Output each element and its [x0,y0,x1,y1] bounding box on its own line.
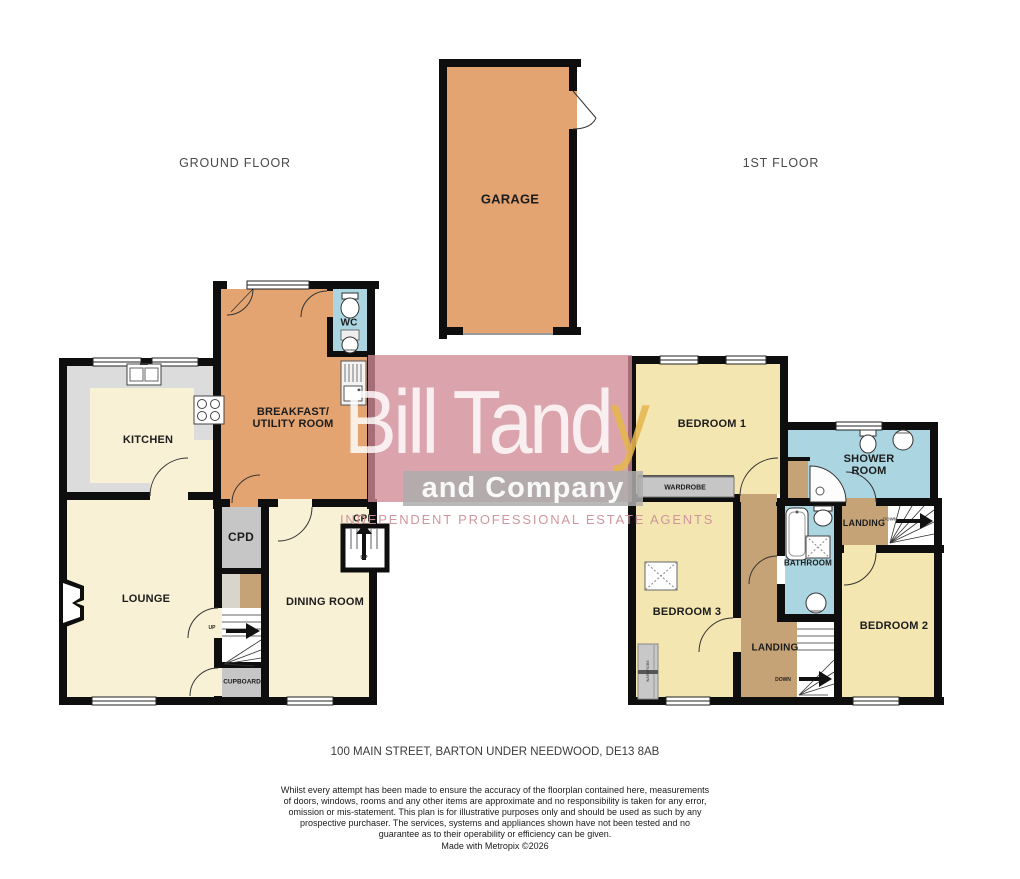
hall-area [222,574,240,608]
small-cpd-staircase-icon [343,524,387,570]
metropix-credit: Made with Metropix ©2026 [280,841,710,851]
shower-room-sink-icon [893,430,913,450]
skylight-icon [645,562,677,590]
wardrobe-small-label: WARDROBE [646,660,650,682]
down-lower-label: DOWN [775,677,791,683]
breakfast-utility-label: BREAKFAST/ UTILITY ROOM [252,406,333,430]
watermark-subbrand-band: and Company [403,471,643,506]
bedroom1-label: BEDROOM 1 [678,418,746,430]
dining-room-label: DINING ROOM [286,596,364,608]
down-upper-label: DOWN [883,517,897,522]
bathroom-shower-icon [806,536,830,558]
shower-room-toilet-icon [860,430,876,453]
ground-floor-plan [59,281,387,705]
airing-closet [788,461,808,500]
wc-toilet-icon [341,293,359,318]
disclaimer-text: Whilst every attempt has been made to en… [280,785,710,840]
bedroom2-label: BEDROOM 2 [860,620,928,632]
wc-sink-icon [342,337,358,353]
kitchen-sink-icon [127,364,161,385]
bathroom-sink-icon [806,593,826,613]
ground-floor-title: GROUND FLOOR [179,156,291,170]
lower-landing-label: LANDING [752,643,799,654]
bathroom-label: BATHROOM [784,559,832,568]
watermark-tagline: INDEPENDENT PROFESSIONAL ESTATE AGENTS [340,512,700,527]
hob-icon [194,396,224,424]
wardrobe-label: WARDROBE [664,485,706,492]
up-small-label: UP [361,555,368,561]
first-floor-title: 1ST FLOOR [743,156,819,170]
lounge-label: LOUNGE [122,593,170,605]
property-address: 100 MAIN STREET, BARTON UNDER NEEDWOOD, … [0,746,990,758]
cupboard-label: CUPBOARD [223,679,261,686]
bathroom-toilet-icon [814,506,832,526]
upper-landing-label: LANDING [843,518,885,528]
up-main-label: UP [209,625,216,631]
garage-label: GARAGE [481,192,539,207]
wc-label: WC [340,318,357,329]
watermark-brand: Bill Tandy [344,378,646,468]
garage-door-opening [463,333,553,335]
shower-room-label: SHOWER ROOM [844,453,895,477]
floorplan-page: GROUND FLOOR 1ST FLOOR GARAGE BREAKFAST/… [0,0,1020,879]
kitchen-label: KITCHEN [123,434,173,446]
bedroom3-label: BEDROOM 3 [653,606,721,618]
cpd-label: CPD [228,530,254,544]
watermark-brand-accent: y [610,373,646,473]
bath-icon [786,508,808,560]
